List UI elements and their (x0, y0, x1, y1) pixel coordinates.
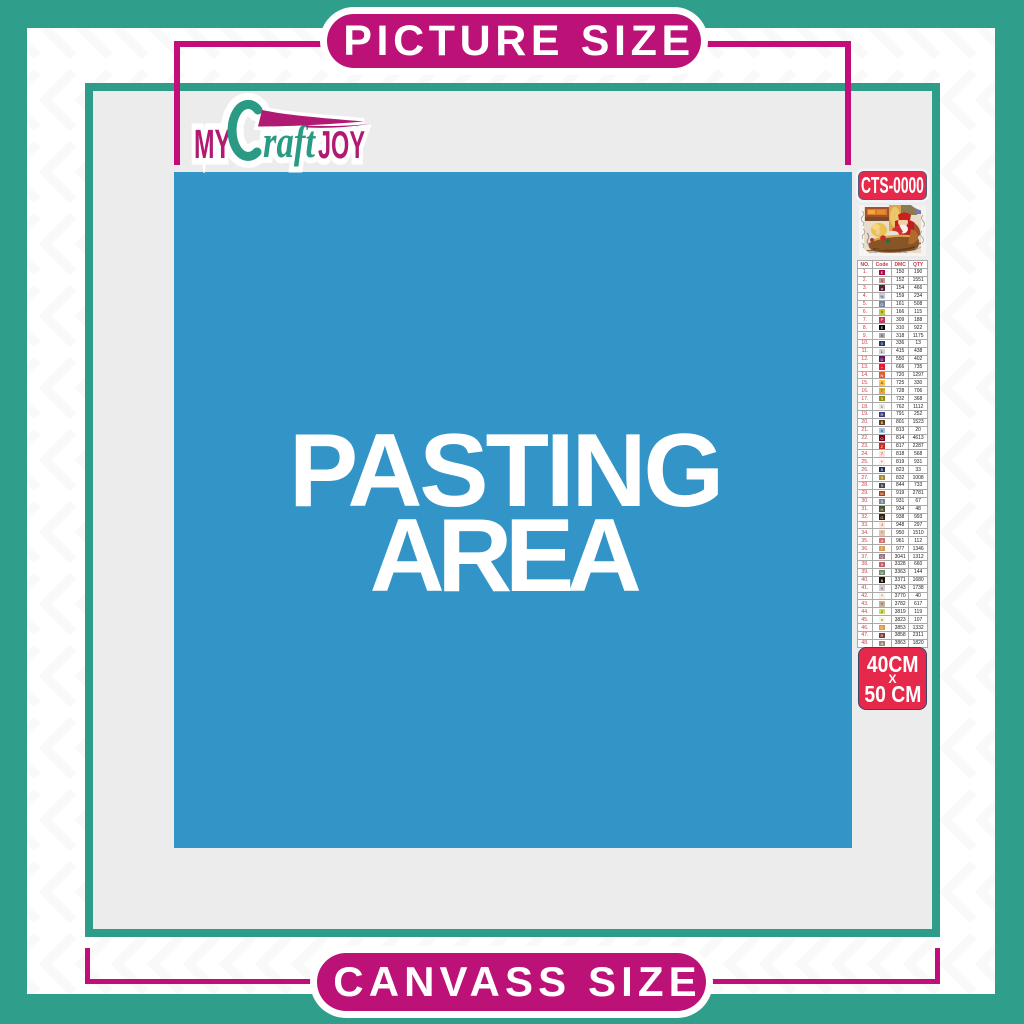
svg-text:MY: MY (194, 121, 231, 167)
svg-text:JOY: JOY (318, 124, 365, 167)
